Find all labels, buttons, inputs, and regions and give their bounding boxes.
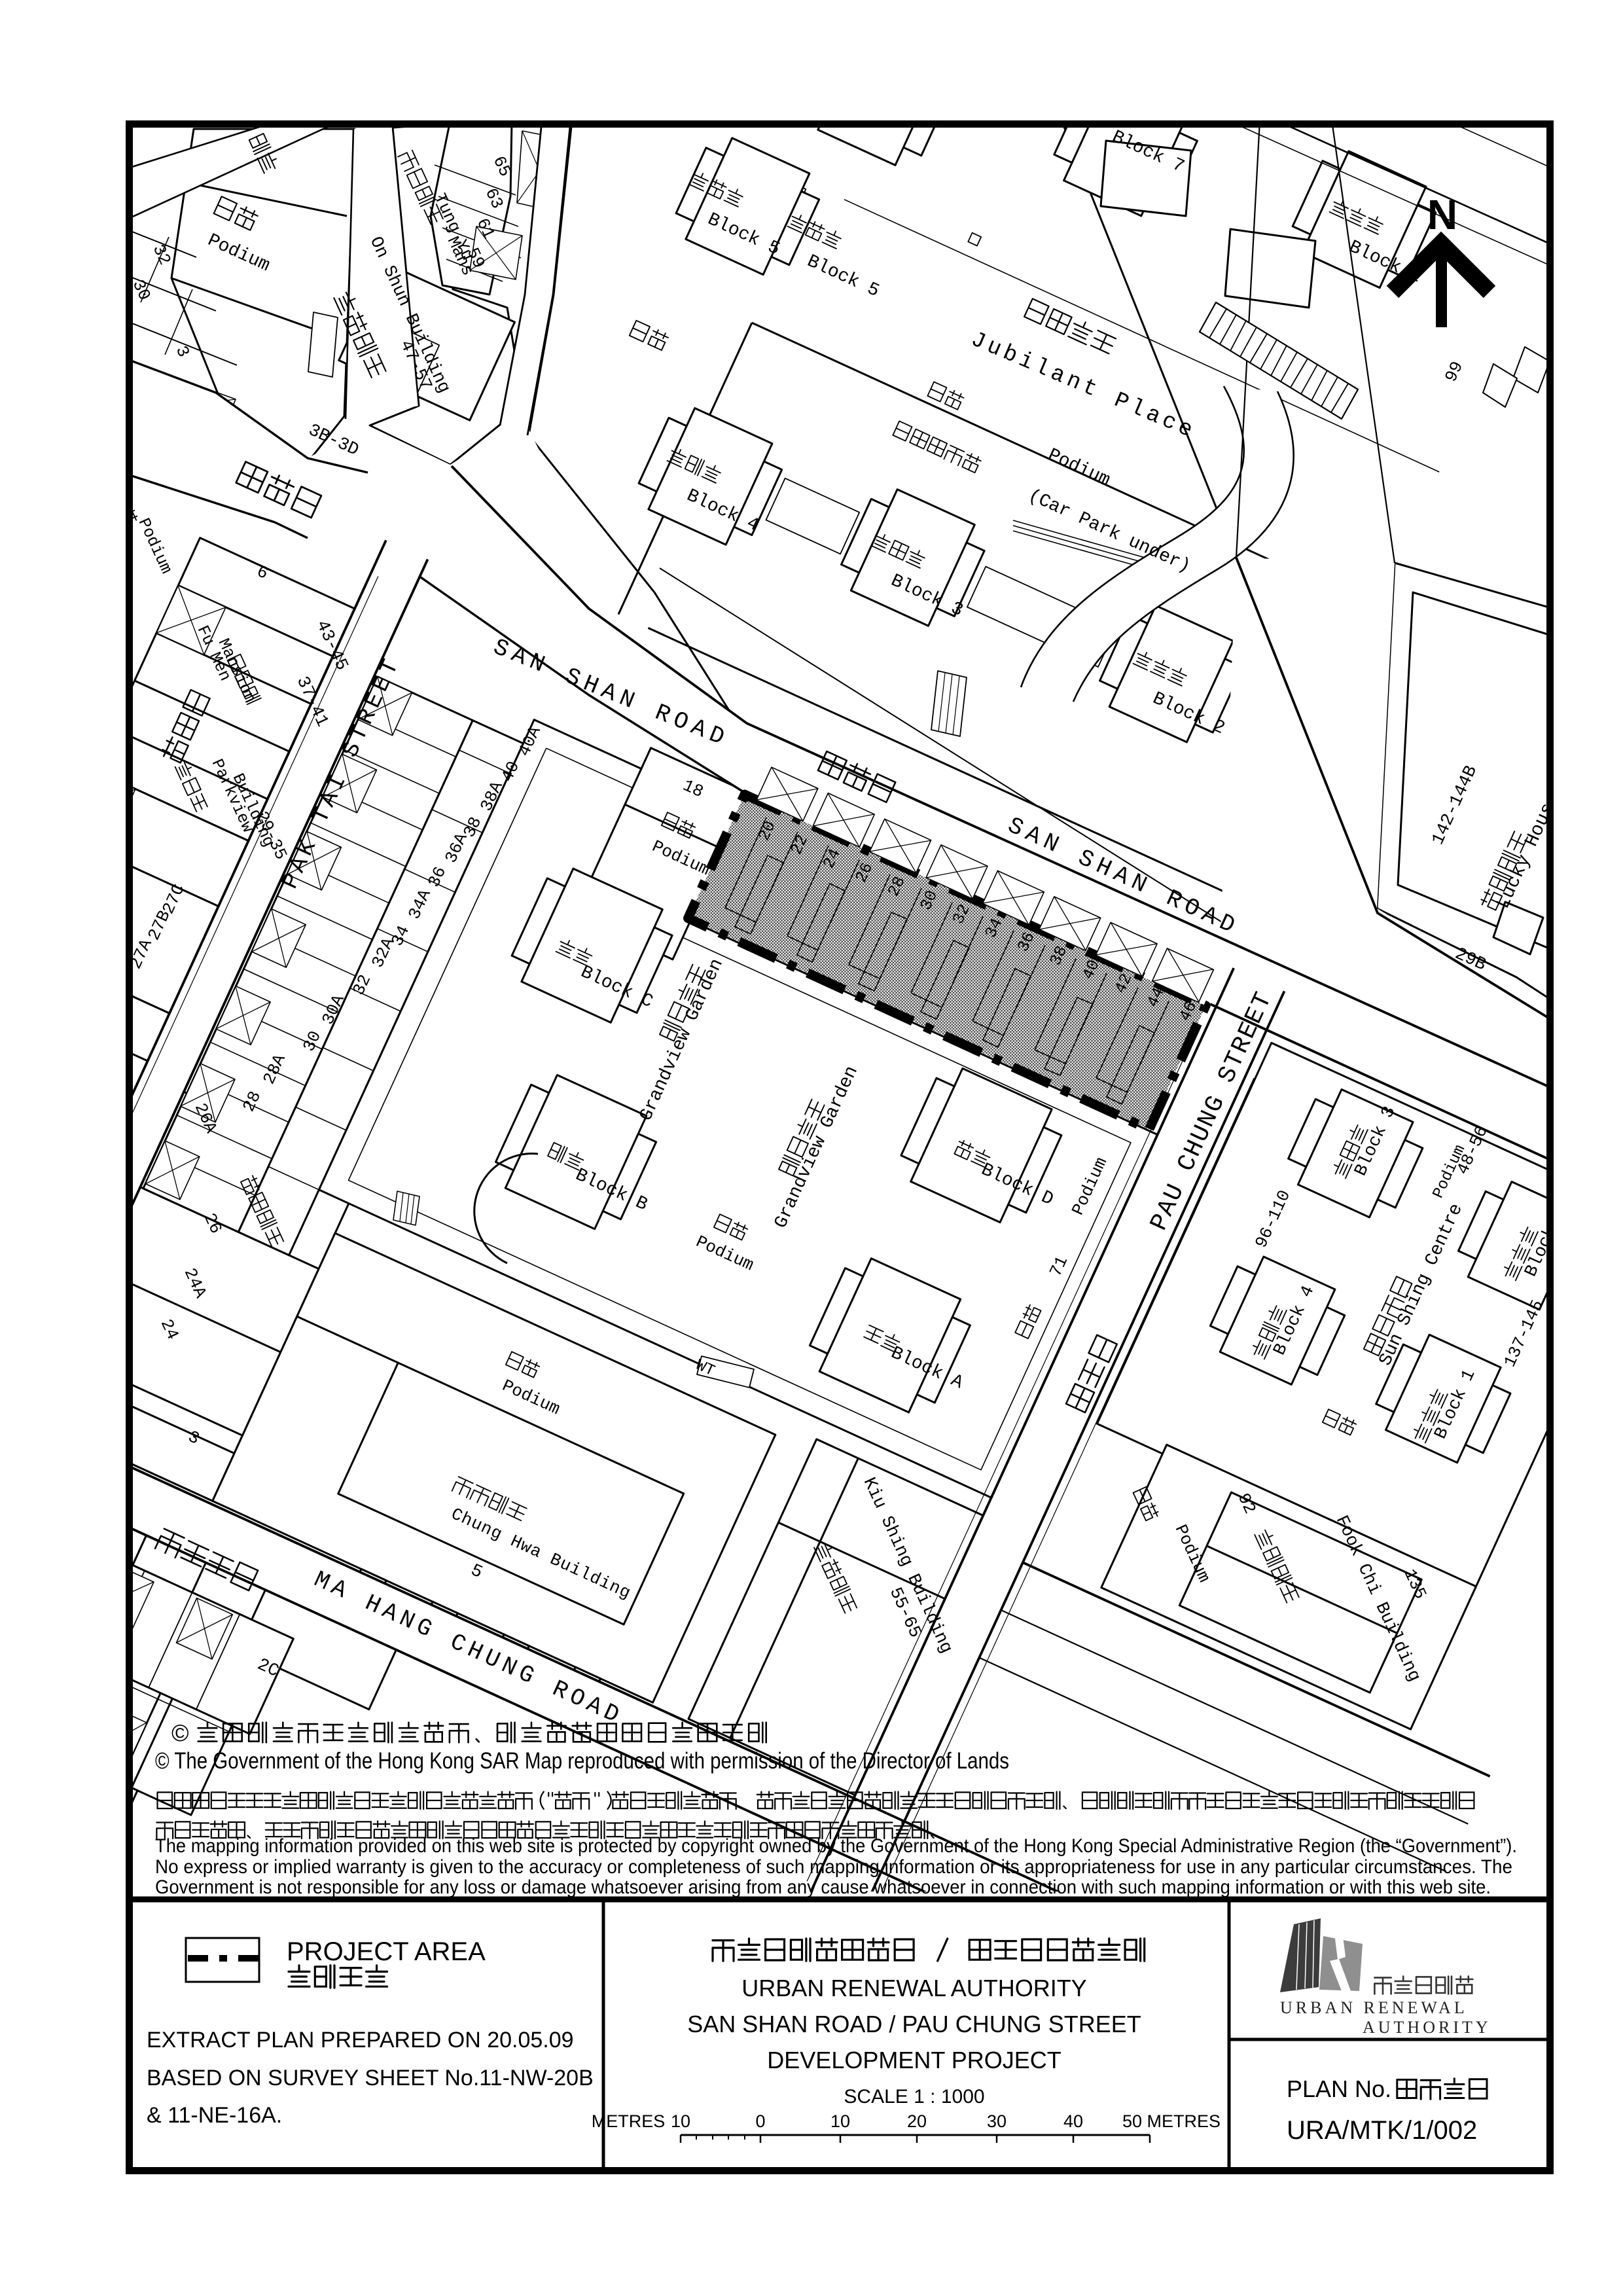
svg-text:20: 20 (907, 2111, 927, 2131)
svg-text:SAN SHAN ROAD / PAU CHUNG: SAN SHAN ROAD / PAU CHUNG STREET (687, 2011, 1141, 2037)
svg-text:PLAN No.: PLAN No. (1287, 2075, 1391, 2102)
svg-text:PROJECT AREA: PROJECT AREA (287, 1937, 486, 1966)
svg-text:EXTRACT PLAN PREPARED ON 20.0: EXTRACT PLAN PREPARED ON 20.05.09 (147, 2028, 574, 2053)
svg-text:0: 0 (755, 2111, 765, 2131)
svg-text:©: © (171, 1719, 189, 1746)
svg-text:URBAN RENEWAL AUTHORITY: URBAN RENEWAL AUTHORITY (741, 1975, 1086, 2001)
svg-text:10: 10 (671, 2111, 690, 2131)
svg-text:N: N (1427, 191, 1457, 238)
svg-text:No express or implied warranty: No express or implied warranty is given … (155, 1856, 1512, 1878)
svg-text:30: 30 (987, 2111, 1007, 2131)
svg-text:& 11-NE-16A.: & 11-NE-16A. (147, 2103, 282, 2128)
svg-text:© The Government of the Hong K: © The Government of the Hong Kong SAR Ma… (155, 1748, 1009, 1774)
svg-text:URBAN RENEWAL: URBAN RENEWAL (1280, 1998, 1468, 2017)
svg-text:50 METRES: 50 METRES (1122, 2111, 1221, 2131)
svg-text:Government is not responsible: Government is not responsible for any lo… (155, 1876, 1491, 1898)
svg-text:AUTHORITY: AUTHORITY (1363, 2018, 1491, 2037)
svg-text:URA/MTK/1/002: URA/MTK/1/002 (1287, 2116, 1477, 2145)
svg-text:BASED ON SURVEY SHEET No.11-NW: BASED ON SURVEY SHEET No.11-NW-20B (147, 2066, 594, 2090)
svg-text:DEVELOPMENT PROJECT: DEVELOPMENT PROJECT (767, 2047, 1061, 2073)
svg-text:10: 10 (830, 2111, 850, 2131)
svg-text:The mapping information provid: The mapping information provided on this… (155, 1835, 1517, 1857)
svg-text:40: 40 (1063, 2111, 1083, 2131)
svg-text:METRES: METRES (592, 2111, 666, 2131)
svg-text:SCALE 1 : 1000: SCALE 1 : 1000 (844, 2086, 984, 2108)
